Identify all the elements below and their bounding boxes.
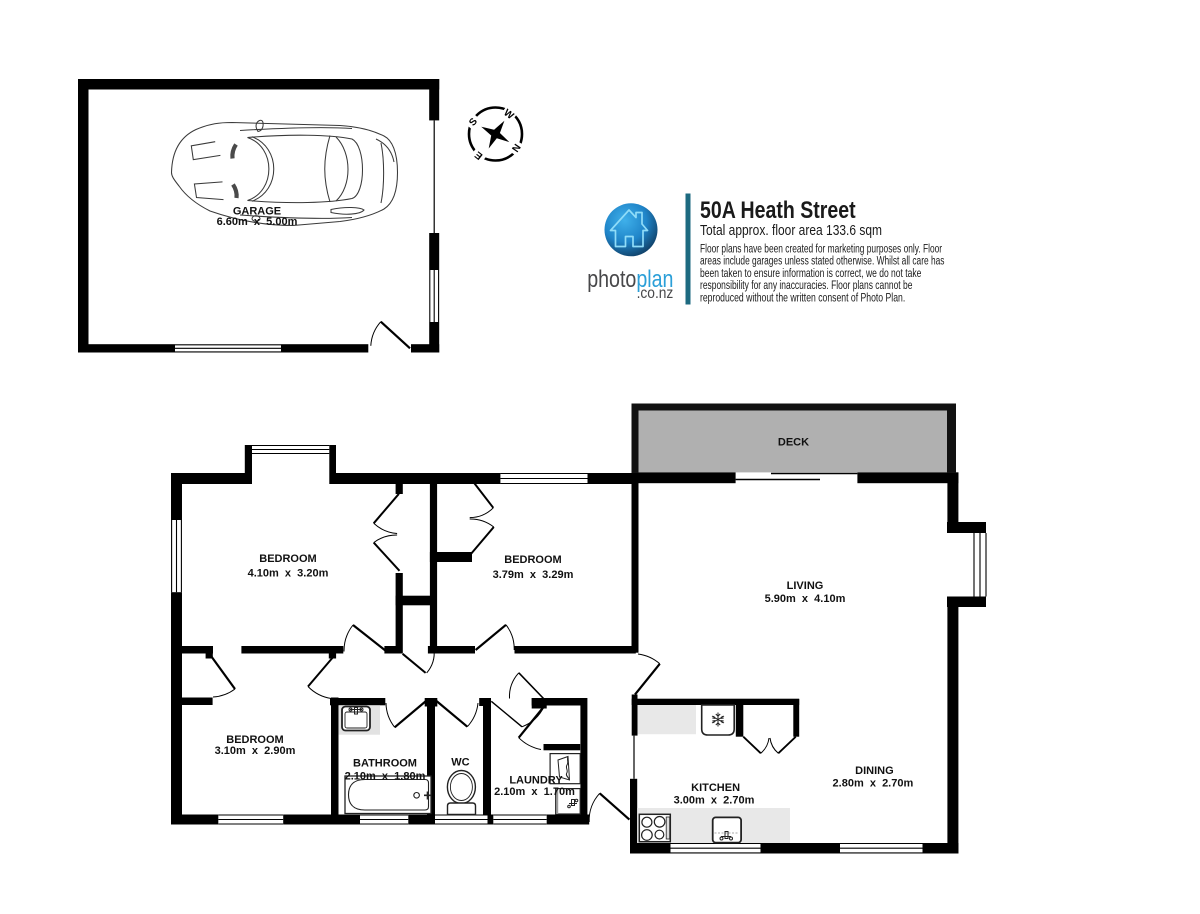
svg-text:.co.nz: .co.nz xyxy=(637,284,674,302)
svg-text:been taken to ensure informati: been taken to ensure information is corr… xyxy=(700,268,921,281)
svg-text:5.90m x 4.10m: 5.90m x 4.10m xyxy=(765,593,846,605)
svg-text:BATHROOM: BATHROOM xyxy=(353,758,417,770)
svg-text:Total approx. floor area 133.6: Total approx. floor area 133.6 sqm xyxy=(700,222,882,239)
svg-text:3.79m x 3.29m: 3.79m x 3.29m xyxy=(493,569,574,581)
svg-text:KITCHEN: KITCHEN xyxy=(691,782,740,794)
svg-text:WC: WC xyxy=(451,757,469,769)
svg-text:Floor plans have been created: Floor plans have been created for market… xyxy=(700,243,943,256)
svg-text:3.00m x 2.70m: 3.00m x 2.70m xyxy=(674,795,755,807)
svg-text:BEDROOM: BEDROOM xyxy=(259,553,316,565)
svg-text:50A Heath Street: 50A Heath Street xyxy=(700,196,856,223)
svg-text:DINING: DINING xyxy=(855,765,894,777)
svg-text:responsibility for any inaccur: responsibility for any inaccuracies. Flo… xyxy=(700,280,913,293)
svg-text:reproduced without the written: reproduced without the written consent o… xyxy=(700,292,905,305)
svg-text:areas include garages unless s: areas include garages unless stated othe… xyxy=(700,255,944,268)
svg-text:2.10m x 1.70m: 2.10m x 1.70m xyxy=(494,786,575,798)
svg-text:3.10m x 2.90m: 3.10m x 2.90m xyxy=(215,745,296,757)
svg-text:BEDROOM: BEDROOM xyxy=(504,554,561,566)
svg-text:6.60m x 5.00m: 6.60m x 5.00m xyxy=(217,216,298,228)
svg-text:LAUNDRY: LAUNDRY xyxy=(509,775,563,787)
svg-text:DECK: DECK xyxy=(778,437,809,449)
svg-text:LIVING: LIVING xyxy=(787,580,824,592)
svg-text:2.10m x 1.80m: 2.10m x 1.80m xyxy=(345,771,426,783)
svg-text:2.80m x 2.70m: 2.80m x 2.70m xyxy=(833,778,914,790)
svg-text:4.10m x 3.20m: 4.10m x 3.20m xyxy=(248,568,329,580)
